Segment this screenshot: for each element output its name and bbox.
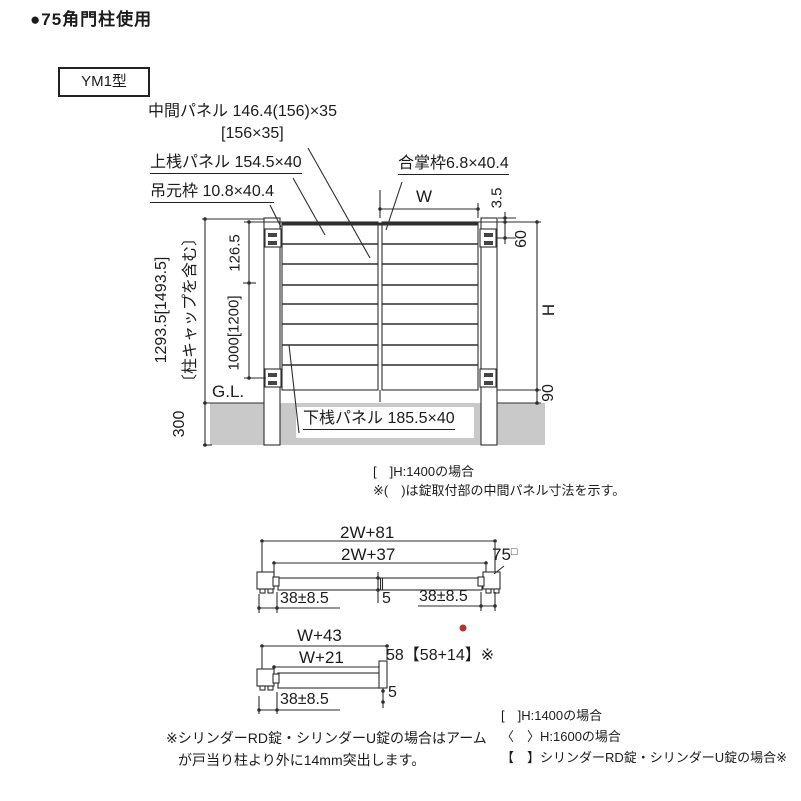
top-hinge-offset-dim: 60 <box>513 230 531 248</box>
note-line: 【 】シリンダーRD錠・シリンダーU錠の場合※ <box>501 747 787 768</box>
legend-notes: [ ]H:1400の場合 〈 〉H:1600の場合 【 】シリンダーRD錠・シリ… <box>501 705 787 768</box>
page-title: ●75角門柱使用 <box>30 10 152 30</box>
cap-clearance-dim: 3.5 <box>489 188 506 209</box>
bottom-clearance-dim: 90 <box>540 384 558 402</box>
double-overall-width-dim: 2W+81 <box>340 523 394 543</box>
double-center-gap-dim: 5 <box>382 590 391 608</box>
model-type-box: YM1型 <box>58 67 150 97</box>
double-panel-width-dim: 2W+37 <box>341 545 395 565</box>
cylinder-lock-note: ※シリンダーRD錠・シリンダーU錠の場合はアーム が戸当り柱より外に14mm突出… <box>166 727 487 771</box>
single-depth-dim: 58【58+14】※ <box>386 647 494 665</box>
note-line: ※シリンダーRD錠・シリンダーU錠の場合はアーム <box>166 727 487 749</box>
post-size-value: 75 <box>492 545 511 564</box>
double-left-gap-dim: 38±8.5 <box>280 590 329 608</box>
note-line: ※( )は錠取付部の中間パネル寸法を示す。 <box>373 481 625 500</box>
leaf-width-dim: W <box>416 187 432 207</box>
hinge-frame-label: 吊元枠 10.8×40.4 <box>150 183 274 203</box>
top-rail-panel-label: 上桟パネル 154.5×40 <box>150 154 302 174</box>
embed-depth-dim: 300 <box>171 411 189 438</box>
single-panel-width-dim: W+21 <box>299 648 344 668</box>
middle-panel-bracket-label: [156×35] <box>221 125 284 143</box>
single-end-gap-dim: 5 <box>388 684 397 702</box>
right-post <box>481 218 497 445</box>
top-section-dim: 126.5 <box>227 234 244 272</box>
middle-panel-label: 中間パネル 146.4(156)×35 <box>148 103 337 121</box>
double-right-gap-dim: 38±8.5 <box>419 588 468 606</box>
note-line: が戸当り柱より外に14mm突出します。 <box>178 749 487 771</box>
single-left-gap-dim: 38±8.5 <box>280 691 329 709</box>
note-line: [ ]H:1400の場合 <box>373 462 625 481</box>
elevation-notes: [ ]H:1400の場合 ※( )は錠取付部の中間パネル寸法を示す。 <box>373 462 625 500</box>
ground-line-label: G.L. <box>212 382 244 402</box>
left-post <box>264 218 280 445</box>
hinge-span-dim: 1000[1200] <box>226 295 243 370</box>
meeting-frame-label: 合掌枠6.8×40.4 <box>398 155 509 175</box>
note-line: [ ]H:1400の場合 <box>501 705 787 726</box>
red-marker-dot <box>460 625 467 632</box>
single-overall-width-dim: W+43 <box>297 626 342 646</box>
gate-diagram-linework <box>0 0 801 801</box>
note-line: 〈 〉H:1600の場合 <box>501 726 787 747</box>
gate-height-dim: H <box>539 304 559 316</box>
technical-drawing-page: ●75角門柱使用 YM1型 中間パネル 146.4(156)×35 [156×3… <box>0 0 801 801</box>
bottom-rail-panel-label: 下桟パネル 185.5×40 <box>303 410 455 430</box>
total-height-note: 〔柱キャップを含む〕 <box>176 230 200 390</box>
gate-leaves <box>282 222 478 402</box>
square-symbol: □ <box>511 546 518 558</box>
model-type-label: YM1型 <box>81 73 127 90</box>
total-height-dim: 1293.5[1493.5] <box>153 257 171 364</box>
post-size-dim: 75□ <box>492 545 518 565</box>
